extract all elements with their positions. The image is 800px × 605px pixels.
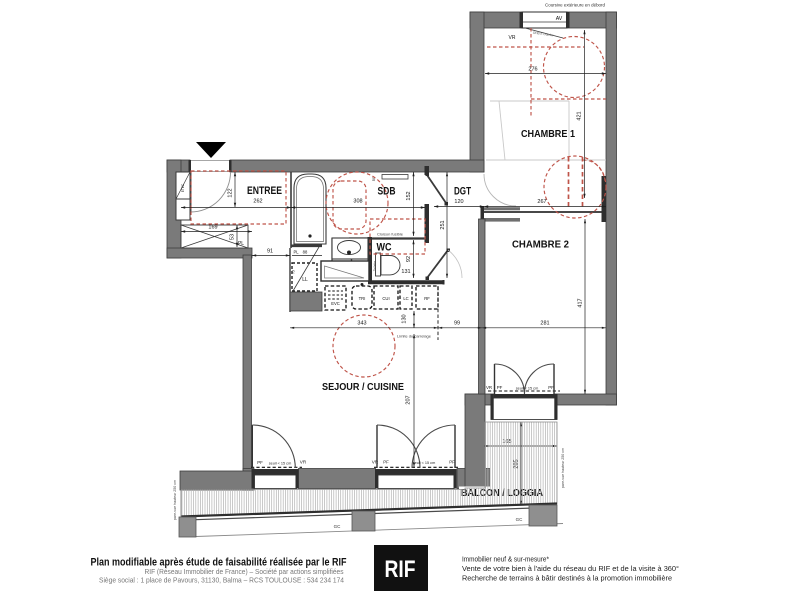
svg-text:TRI: TRI (359, 296, 366, 301)
svg-text:PF: PF (497, 385, 503, 390)
svg-text:pare-vue hauteur 250 cm: pare-vue hauteur 250 cm (173, 480, 177, 520)
svg-text:LC: LC (403, 296, 408, 301)
svg-text:ETEC: ETEC (181, 183, 185, 192)
svg-text:205: 205 (514, 459, 520, 468)
svg-text:PF: PF (257, 460, 263, 465)
svg-text:RIF: RIF (385, 556, 416, 583)
svg-text:VR: VR (486, 385, 492, 390)
svg-text:120: 120 (454, 199, 463, 205)
svg-text:AV: AV (556, 16, 563, 22)
svg-text:152: 152 (406, 191, 412, 200)
svg-text:308: 308 (353, 199, 362, 205)
svg-text:seuil < 15 cm: seuil < 15 cm (413, 461, 435, 465)
svg-text:VR: VR (300, 460, 307, 465)
svg-text:262: 262 (253, 199, 262, 205)
svg-text:251: 251 (440, 220, 446, 229)
svg-text:CHAMBRE 2: CHAMBRE 2 (512, 239, 569, 251)
svg-text:PF: PF (449, 460, 455, 465)
svg-text:276: 276 (528, 67, 537, 73)
svg-text:EVC: EVC (331, 301, 340, 306)
svg-text:Recherche de terrains à bâtir: Recherche de terrains à bâtir destinés à… (462, 574, 672, 583)
svg-text:169: 169 (208, 225, 217, 231)
svg-text:GC: GC (516, 517, 524, 522)
svg-text:Toilette: Toilette (373, 261, 377, 272)
svg-text:Coursive extérieure en débord: Coursive extérieure en débord (545, 3, 605, 9)
svg-text:PF: PF (548, 385, 554, 390)
svg-text:VR: VR (372, 460, 379, 465)
svg-text:GC: GC (334, 524, 342, 529)
svg-text:DGT: DGT (454, 186, 471, 198)
svg-text:CUI: CUI (382, 296, 389, 301)
svg-text:seuil < 15 cm: seuil < 15 cm (269, 461, 291, 465)
svg-text:BALCON / LOGGIA: BALCON / LOGGIA (461, 487, 543, 499)
svg-text:LL: LL (302, 277, 308, 283)
svg-text:Cloison fusible: Cloison fusible (377, 232, 404, 237)
svg-text:99: 99 (454, 321, 460, 327)
svg-text:122: 122 (228, 188, 234, 197)
svg-text:SEJOUR / CUISINE: SEJOUR / CUISINE (322, 381, 404, 393)
svg-text:CHAMBRE 1: CHAMBRE 1 (521, 128, 575, 140)
svg-text:PF: PF (383, 460, 389, 465)
svg-text:PL: PL (238, 241, 244, 247)
svg-text:281: 281 (540, 321, 549, 327)
svg-text:207: 207 (406, 395, 412, 404)
svg-text:343: 343 (357, 321, 366, 327)
svg-text:267: 267 (537, 199, 546, 205)
svg-text:130: 130 (402, 314, 408, 323)
svg-text:417: 417 (578, 298, 584, 307)
svg-text:53: 53 (230, 234, 236, 240)
svg-text:seuil < 15 cm: seuil < 15 cm (516, 386, 538, 390)
svg-text:Immobilier neuf & sur-mesure*: Immobilier neuf & sur-mesure* (462, 555, 549, 564)
svg-text:PL: PL (293, 250, 299, 255)
svg-text:88: 88 (303, 250, 308, 255)
svg-text:91: 91 (267, 249, 273, 255)
svg-text:SDB: SDB (378, 186, 396, 198)
svg-text:RF: RF (424, 296, 430, 301)
svg-text:421: 421 (577, 111, 583, 120)
svg-text:131: 131 (401, 269, 410, 275)
svg-text:92: 92 (406, 256, 412, 262)
svg-text:VR: VR (509, 35, 516, 41)
svg-text:Siège social : 1 place de Pavo: Siège social : 1 place de Pavours, 31130… (99, 576, 344, 585)
svg-text:70l: 70l (292, 270, 296, 275)
svg-text:pare-vue hauteur 250 cm: pare-vue hauteur 250 cm (561, 448, 565, 488)
svg-text:ENTREE: ENTREE (247, 185, 282, 197)
svg-text:WC: WC (377, 242, 392, 254)
svg-text:Vente de votre bien à l'aide d: Vente de votre bien à l'aide du réseau d… (462, 564, 679, 573)
